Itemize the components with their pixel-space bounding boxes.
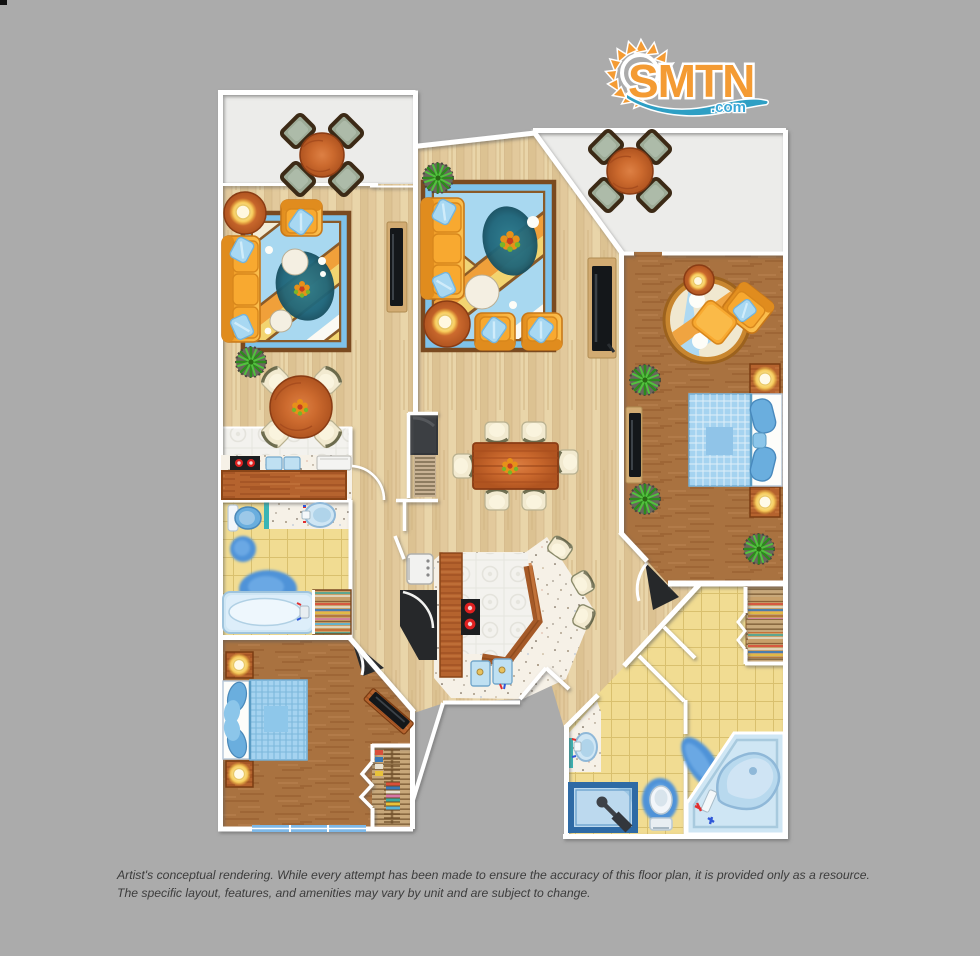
svg-text:.com: .com bbox=[711, 99, 746, 116]
svg-text:Artist's conceptual rendering.: Artist's conceptual rendering. While eve… bbox=[116, 868, 870, 882]
svg-text:The specific layout, features,: The specific layout, features, and ameni… bbox=[117, 886, 591, 900]
